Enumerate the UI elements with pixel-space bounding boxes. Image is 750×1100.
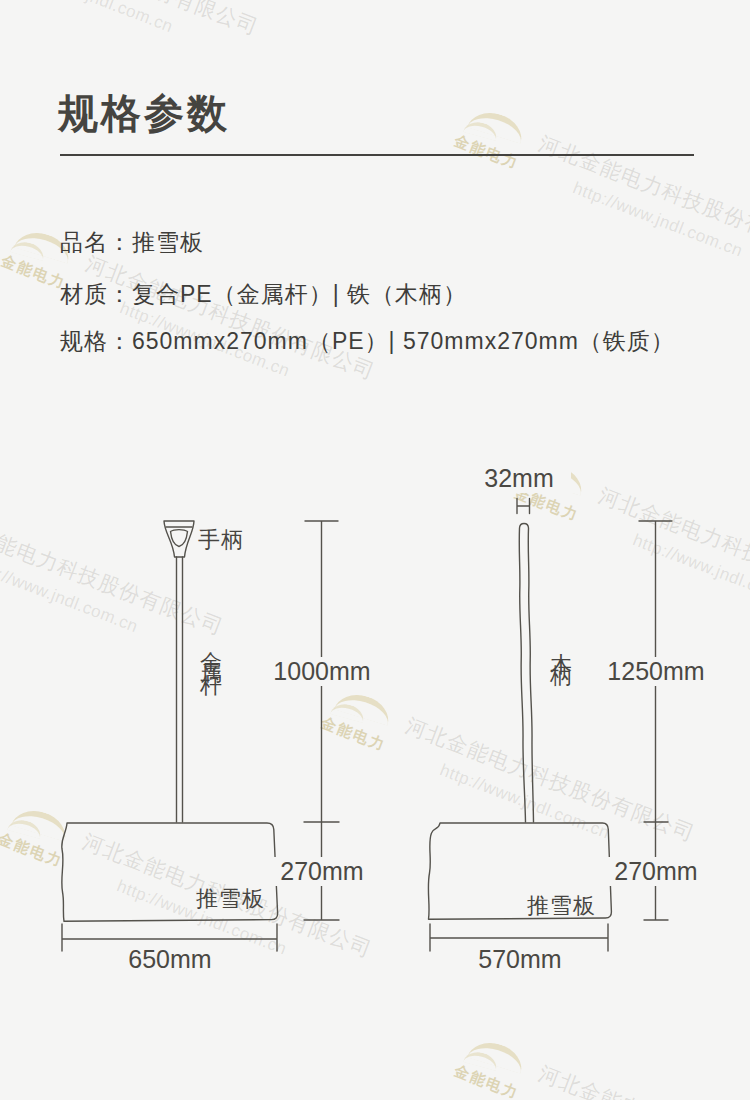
page-title: 规格参数 xyxy=(58,86,230,141)
handle-label: 手柄 xyxy=(198,525,244,555)
board-label-left: 推雪板 xyxy=(196,884,265,914)
dim-label-board-right: 270mm xyxy=(602,857,710,886)
spec-value: 复合PE（金属杆）| 铁（木柄） xyxy=(132,281,467,307)
spec-label: 规格： xyxy=(60,328,132,354)
page-root: { "header": { "title": "规格参数" }, "specs"… xyxy=(0,0,750,1100)
dim-label-height-right: 1250mm xyxy=(601,657,711,686)
board-label-right: 推雪板 xyxy=(527,891,596,921)
metal-pole-label: 金属杆 xyxy=(196,633,226,669)
spec-label: 材质： xyxy=(60,281,132,307)
diagram-canvas xyxy=(0,0,750,1100)
dim-label-diameter-right: 32mm xyxy=(467,464,571,493)
dim-label-height-left: 1000mm xyxy=(270,657,374,686)
spec-row-size: 规格：650mmx270mm（PE）| 570mmx270mm（铁质） xyxy=(60,326,675,357)
metal-pole-shape xyxy=(177,557,183,822)
spec-row-material: 材质：复合PE（金属杆）| 铁（木柄） xyxy=(60,279,467,310)
spec-row-name: 品名：推雪板 xyxy=(60,227,204,258)
d-handle-hole xyxy=(171,530,188,547)
wood-pole-label: 木柄 xyxy=(546,635,576,659)
wood-pole-shape xyxy=(519,524,533,823)
title-divider xyxy=(60,154,694,156)
spec-value: 推雪板 xyxy=(132,229,204,255)
spec-value: 650mmx270mm（PE）| 570mmx270mm（铁质） xyxy=(132,328,675,354)
diameter-bracket xyxy=(517,499,530,514)
dim-label-width-right: 570mm xyxy=(468,945,572,974)
dim-label-width-left: 650mm xyxy=(118,945,222,974)
spec-label: 品名： xyxy=(60,229,132,255)
dim-label-board-left: 270mm xyxy=(270,857,374,886)
